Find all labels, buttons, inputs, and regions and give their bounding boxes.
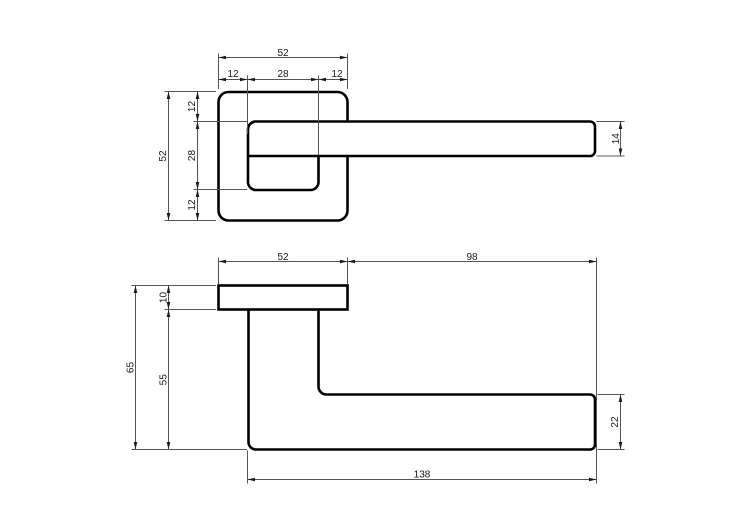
svg-text:52: 52 <box>158 150 169 162</box>
svg-text:14: 14 <box>611 133 622 145</box>
svg-text:12: 12 <box>187 199 198 211</box>
svg-text:12: 12 <box>187 101 198 113</box>
svg-text:52: 52 <box>277 48 289 59</box>
svg-text:28: 28 <box>187 150 198 162</box>
svg-text:138: 138 <box>414 470 431 481</box>
svg-text:55: 55 <box>159 374 170 386</box>
svg-text:10: 10 <box>159 292 170 304</box>
svg-text:22: 22 <box>610 416 621 428</box>
svg-text:98: 98 <box>466 252 478 263</box>
svg-text:65: 65 <box>126 362 137 374</box>
svg-text:52: 52 <box>277 252 289 263</box>
svg-text:12: 12 <box>227 69 239 80</box>
svg-text:12: 12 <box>331 69 343 80</box>
svg-text:28: 28 <box>277 69 289 80</box>
